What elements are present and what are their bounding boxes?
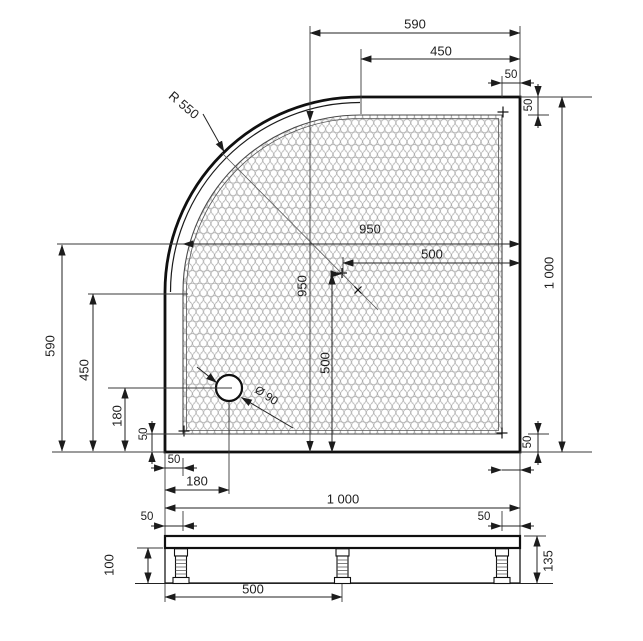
foot-left — [173, 549, 189, 584]
dim-label-bottom-1000: 1 000 — [327, 492, 360, 507]
dim-label-500-v: 500 — [318, 352, 333, 374]
dim-label-950-h: 950 — [359, 222, 381, 237]
dim-label-section-500: 500 — [242, 582, 264, 597]
dim-label-left-50: 50 — [138, 428, 150, 441]
dim-label-500-h: 500 — [421, 247, 443, 262]
foot-center — [335, 549, 351, 584]
dim-label-left-180: 180 — [110, 405, 125, 427]
section-view — [135, 536, 553, 584]
dim-label-top-50: 50 — [505, 69, 518, 81]
technical-drawing: 590 450 50 1 000 50 50 590 450 180 50 95… — [0, 0, 643, 641]
radius-leader — [203, 114, 224, 152]
dim-label-section-100: 100 — [102, 554, 117, 576]
shower-tray-drawing-svg: 590 450 50 1 000 50 50 590 450 180 50 95… — [0, 0, 643, 641]
dim-label-left-590: 590 — [43, 335, 58, 357]
dim-label-bottom-50: 50 — [168, 454, 181, 466]
dim-label-950-v: 950 — [295, 275, 310, 297]
dim-label-radius: R 550 — [166, 88, 202, 122]
dim-label-right-50-bottom: 50 — [522, 436, 534, 449]
dim-label-right-1000: 1 000 — [542, 257, 557, 290]
dim-label-section-50-right: 50 — [478, 511, 491, 523]
dim-label-top-590: 590 — [404, 17, 426, 32]
dim-label-right-50-top: 50 — [523, 99, 535, 112]
dim-label-section-135: 135 — [541, 550, 556, 572]
plan-view — [165, 97, 520, 452]
tray-slab — [165, 536, 520, 548]
dim-label-top-450: 450 — [430, 44, 452, 59]
dim-label-left-450: 450 — [77, 359, 92, 381]
foot-right — [494, 549, 510, 584]
dim-label-section-50-left: 50 — [141, 511, 154, 523]
dim-label-bottom-180: 180 — [186, 474, 208, 489]
